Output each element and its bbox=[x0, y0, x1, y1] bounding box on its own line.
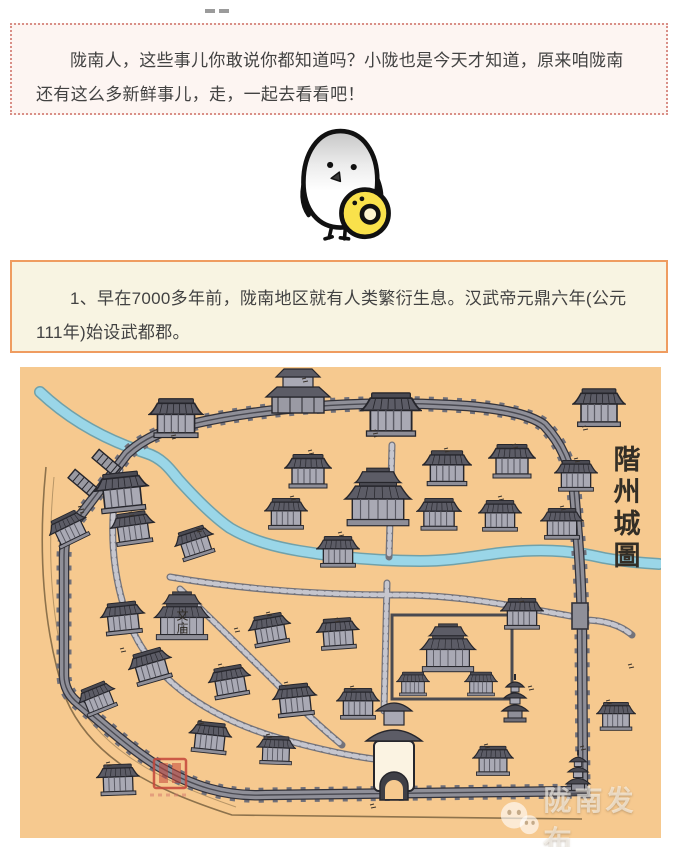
fact-box: 1、早在7000多年前，陇南地区就有人类繁衍生息。汉武帝元鼎六年(公元111年)… bbox=[10, 260, 668, 353]
chick-cartoon-icon bbox=[291, 127, 399, 245]
intro-text: 陇南人，这些事儿你敢说你都知道吗？小陇也是今天才知道，原来咱陇南还有这么多新鲜事… bbox=[12, 25, 666, 112]
cropped-text-fragment bbox=[205, 0, 235, 4]
city-map-drawing: 文庙 階州城圖 bbox=[20, 367, 661, 838]
wechat-logo-icon bbox=[498, 798, 543, 840]
wenmiao-label: 文庙 bbox=[175, 608, 189, 635]
watermark-text: 陇南发布 bbox=[543, 779, 661, 847]
city-map-image[interactable]: 文庙 階州城圖 陇南发布 bbox=[20, 367, 661, 838]
map-title: 階州城圖 bbox=[609, 445, 641, 573]
watermark: 陇南发布 bbox=[498, 779, 661, 847]
chick-illustration[interactable] bbox=[291, 127, 399, 245]
fact-text: 1、早在7000多年前，陇南地区就有人类繁衍生息。汉武帝元鼎六年(公元111年)… bbox=[12, 262, 666, 350]
east-gate bbox=[572, 603, 588, 629]
article-page: 陇南人，这些事儿你敢说你都知道吗？小陇也是今天才知道，原来咱陇南还有这么多新鲜事… bbox=[0, 0, 682, 847]
intro-box: 陇南人，这些事儿你敢说你都知道吗？小陇也是今天才知道，原来咱陇南还有这么多新鲜事… bbox=[10, 23, 668, 115]
